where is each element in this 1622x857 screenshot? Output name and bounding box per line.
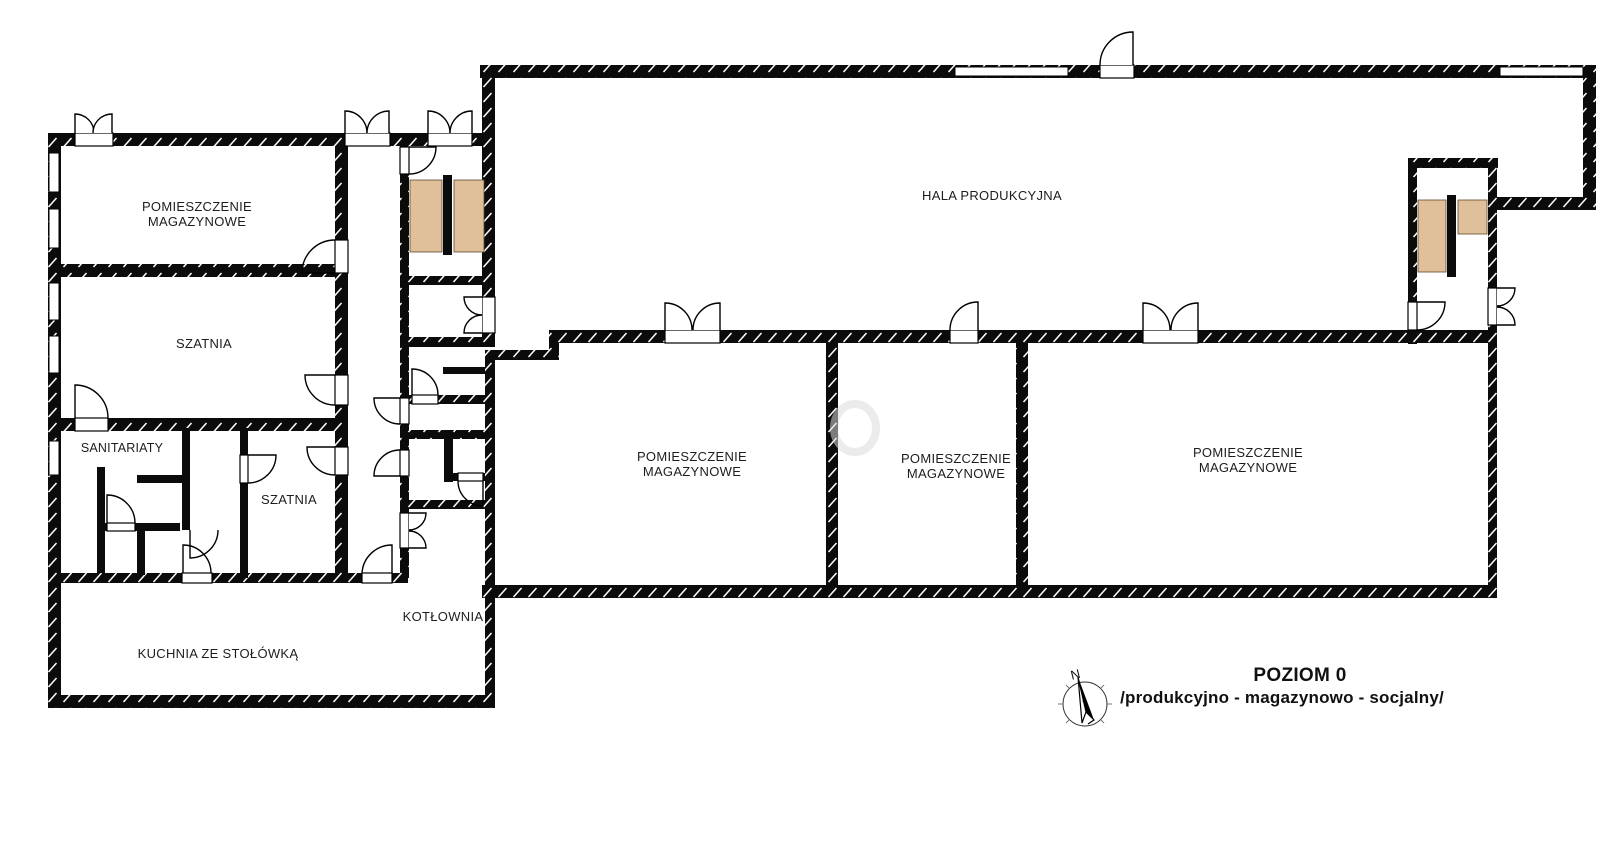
compass-north-label: N bbox=[1069, 666, 1082, 683]
door-icon bbox=[75, 385, 108, 431]
double-door-icon bbox=[464, 297, 495, 333]
double-door-icon bbox=[428, 111, 472, 146]
compass-center-dot bbox=[1083, 700, 1086, 703]
room-label-kotlownia: KOTŁOWNIA bbox=[403, 609, 484, 624]
room-label-szatnia-upper: SZATNIA bbox=[176, 336, 232, 351]
door-icon bbox=[412, 369, 438, 404]
room-label-storage-mid-center: MAGAZYNOWE bbox=[907, 466, 1005, 481]
door-icon bbox=[374, 450, 409, 476]
door-icon bbox=[307, 447, 348, 475]
wall-structure bbox=[48, 65, 1596, 708]
room-label-storage-top-left: POMIESZCZENIE bbox=[142, 199, 252, 214]
left-staircase bbox=[410, 175, 484, 255]
door-icon bbox=[107, 495, 135, 531]
door-icon bbox=[400, 147, 436, 174]
window bbox=[49, 336, 59, 373]
right-staircase bbox=[1418, 195, 1487, 277]
window bbox=[49, 441, 59, 475]
floor-plan-page: POMIESZCZENIE MAGAZYNOWE SZATNIA SANITAR… bbox=[0, 0, 1622, 857]
floor-plan-drawing: POMIESZCZENIE MAGAZYNOWE SZATNIA SANITAR… bbox=[0, 0, 1622, 857]
level-title: POZIOM 0 bbox=[1253, 665, 1346, 686]
door-icon bbox=[1100, 32, 1134, 78]
door-icon bbox=[950, 302, 978, 343]
window bbox=[1500, 67, 1583, 76]
room-label-storage-mid-left: MAGAZYNOWE bbox=[643, 464, 741, 479]
double-door-icon bbox=[400, 513, 426, 548]
double-door-icon bbox=[1143, 303, 1198, 343]
watermark bbox=[834, 404, 876, 452]
door-icon bbox=[240, 455, 276, 483]
room-label-storage-mid-right: MAGAZYNOWE bbox=[1199, 460, 1297, 475]
room-label-storage-top-left: MAGAZYNOWE bbox=[148, 214, 246, 229]
room-label-storage-mid-left: POMIESZCZENIE bbox=[637, 449, 747, 464]
door-icon bbox=[362, 545, 392, 583]
room-label-kuchnia: KUCHNIA ZE STOŁÓWKĄ bbox=[138, 646, 299, 661]
room-label-hala: HALA PRODUKCYJNA bbox=[922, 188, 1062, 203]
level-subtitle: /produkcyjno - magazynowo - socjalny/ bbox=[1120, 688, 1444, 707]
door-icon bbox=[1408, 302, 1445, 330]
room-label-storage-mid-right: POMIESZCZENIE bbox=[1193, 445, 1303, 460]
door-icon bbox=[182, 545, 212, 583]
double-door-icon bbox=[1488, 288, 1515, 325]
double-door-icon bbox=[75, 114, 113, 146]
door-icon bbox=[374, 398, 409, 424]
window bbox=[49, 153, 59, 192]
window bbox=[49, 283, 59, 320]
window bbox=[955, 67, 1068, 76]
double-door-icon bbox=[665, 303, 720, 343]
compass-icon: N bbox=[1058, 666, 1112, 726]
room-label-sanitariaty: SANITARIATY bbox=[81, 441, 164, 455]
title-block: POZIOM 0 /produkcyjno - magazynowo - soc… bbox=[1120, 665, 1444, 707]
double-door-icon bbox=[345, 111, 390, 146]
room-label-szatnia-lower: SZATNIA bbox=[261, 492, 317, 507]
room-label-storage-mid-center: POMIESZCZENIE bbox=[901, 451, 1011, 466]
door-icon bbox=[305, 375, 348, 405]
window bbox=[49, 209, 59, 248]
